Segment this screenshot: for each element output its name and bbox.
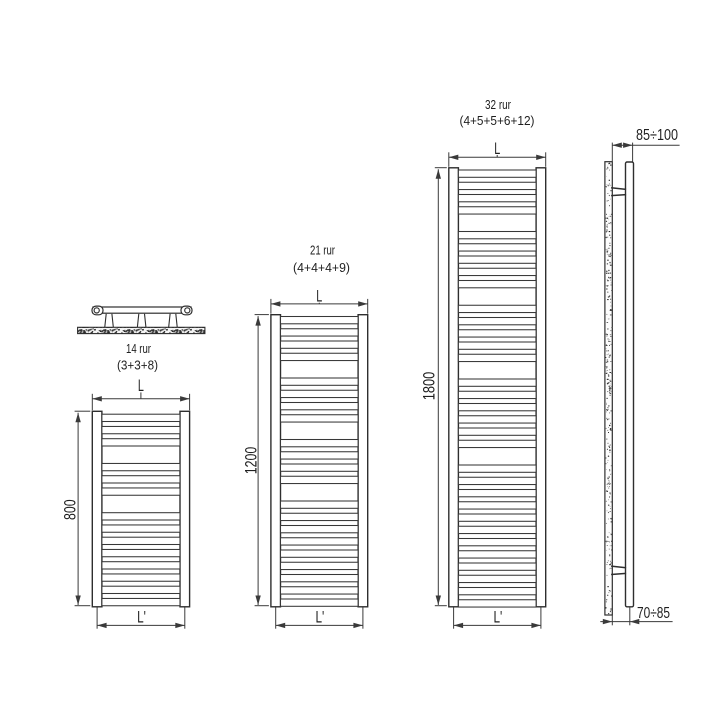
svg-text:L: L [138,376,144,395]
svg-text:L': L' [494,608,503,627]
svg-text:L: L [316,287,322,306]
svg-text:85÷100: 85÷100 [636,127,678,144]
svg-text:(3+3+8): (3+3+8) [117,359,158,373]
svg-text:800: 800 [62,499,80,520]
svg-text:21 rur: 21 rur [310,242,335,257]
svg-text:1200: 1200 [242,447,260,475]
svg-text:14 rur: 14 rur [126,341,151,356]
svg-text:(4+5+5+6+12): (4+5+5+6+12) [460,114,535,128]
svg-text:70÷85: 70÷85 [637,605,670,622]
svg-text:L: L [494,139,500,158]
svg-text:1800: 1800 [421,372,439,401]
svg-text:L': L' [316,608,325,627]
svg-text:(4+4+4+9): (4+4+4+9) [293,261,350,275]
svg-text:L': L' [137,608,146,627]
svg-text:32 rur: 32 rur [485,97,512,112]
